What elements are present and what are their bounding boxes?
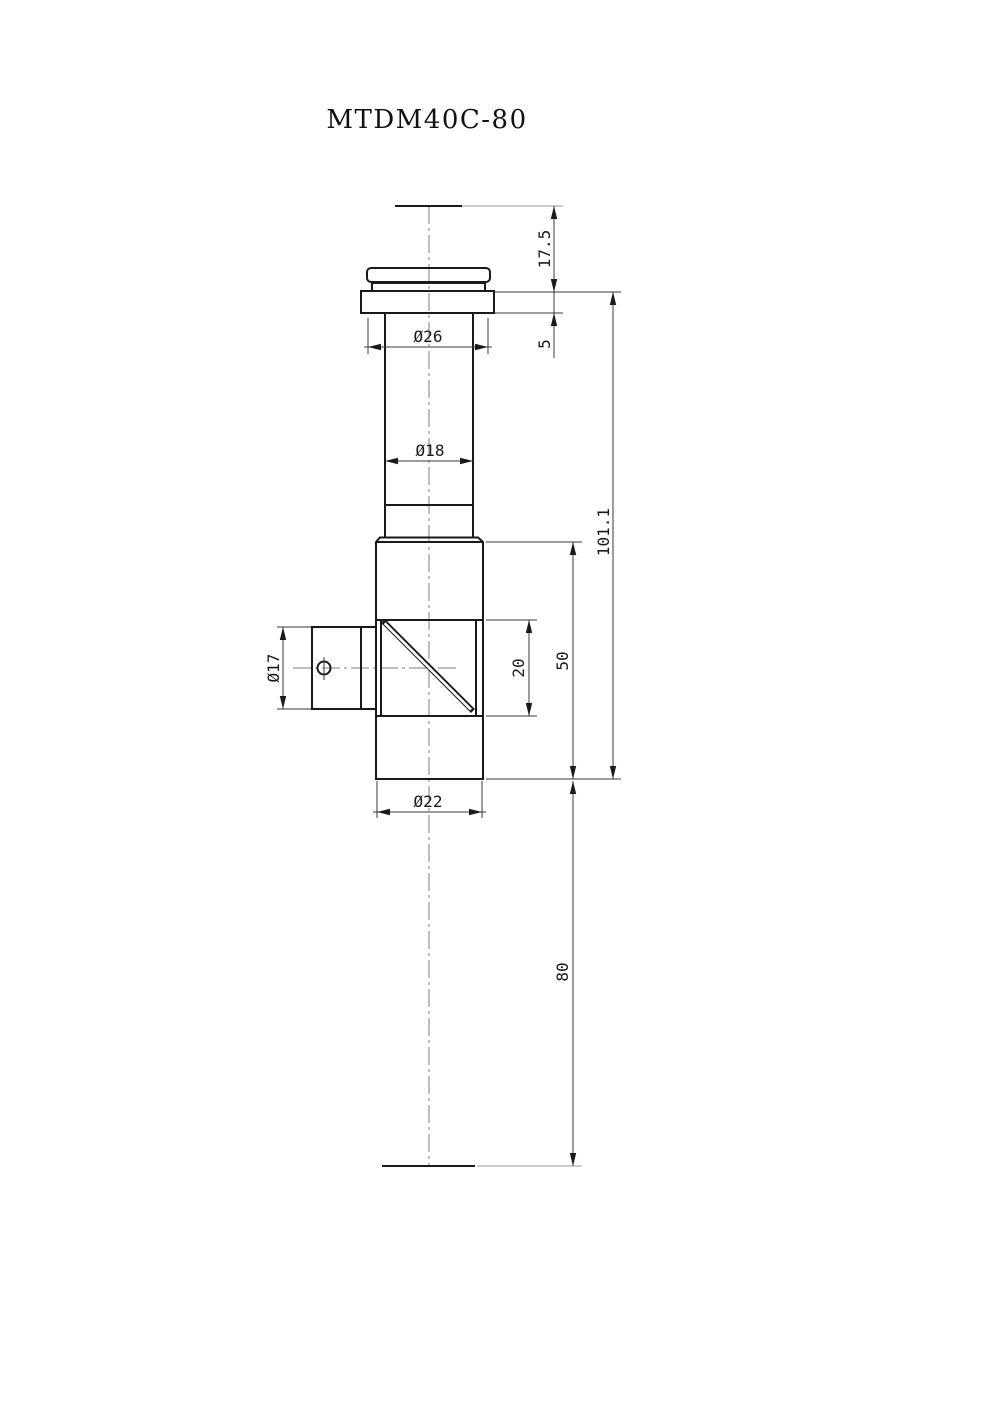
dim-bottom-distance: 80 <box>553 781 576 1166</box>
dim-flange-thickness: 5 <box>535 292 557 358</box>
arrowhead-down <box>280 696 286 709</box>
dim-tube-diameter: Ø18 <box>385 441 473 464</box>
dim-label-bottom-distance: 80 <box>553 962 572 981</box>
arrowhead-left <box>385 458 398 464</box>
dim-overall-length: 101.1 <box>594 292 616 779</box>
arrowhead-up <box>551 206 557 219</box>
arrowhead-down <box>526 703 532 716</box>
dim-body-diameter: Ø22 <box>373 792 486 815</box>
arrowhead-right <box>475 344 488 350</box>
mirror-inner <box>385 623 471 709</box>
dim-label-side-port-diameter: Ø17 <box>264 654 283 683</box>
arrowhead-up <box>570 542 576 555</box>
top-flange <box>361 291 494 313</box>
arrowhead-left <box>368 344 381 350</box>
arrowhead-up <box>610 292 616 305</box>
dim-label-overall-length: 101.1 <box>594 508 613 556</box>
dim-label-top-section-height: 17.5 <box>535 230 554 269</box>
dim-body-height: 50 <box>553 542 576 779</box>
arrowhead-up <box>526 620 532 633</box>
arrowhead-left <box>377 809 390 815</box>
dim-label-tube-diameter: Ø18 <box>416 441 445 460</box>
dim-window-height: 20 <box>509 620 532 716</box>
drawing-sheet: MTDM40C-80 <box>0 0 992 1403</box>
dim-label-window-height: 20 <box>509 658 528 677</box>
arrowhead-up-outside <box>551 313 557 326</box>
part-outline <box>312 206 494 1166</box>
mirror-diagonal <box>383 621 473 711</box>
arrowhead-up <box>570 781 576 794</box>
dim-label-flange-thickness: 5 <box>535 339 554 349</box>
dim-label-body-diameter: Ø22 <box>414 792 443 811</box>
arrowhead-down <box>570 766 576 779</box>
drawing-title: MTDM40C-80 <box>326 105 527 135</box>
arrowhead-up <box>280 627 286 640</box>
dim-label-cap-diameter: Ø26 <box>414 327 443 346</box>
dim-top-section-height: 17.5 <box>535 206 557 292</box>
dim-side-port-diameter: Ø17 <box>264 627 286 709</box>
arrowhead-right <box>460 458 473 464</box>
arrowhead-down <box>570 1153 576 1166</box>
technical-drawing: MTDM40C-80 <box>0 0 992 1403</box>
dim-label-body-height: 50 <box>553 651 572 670</box>
arrowhead-right <box>469 809 482 815</box>
arrowhead-down <box>610 766 616 779</box>
arrowhead-down <box>551 279 557 292</box>
